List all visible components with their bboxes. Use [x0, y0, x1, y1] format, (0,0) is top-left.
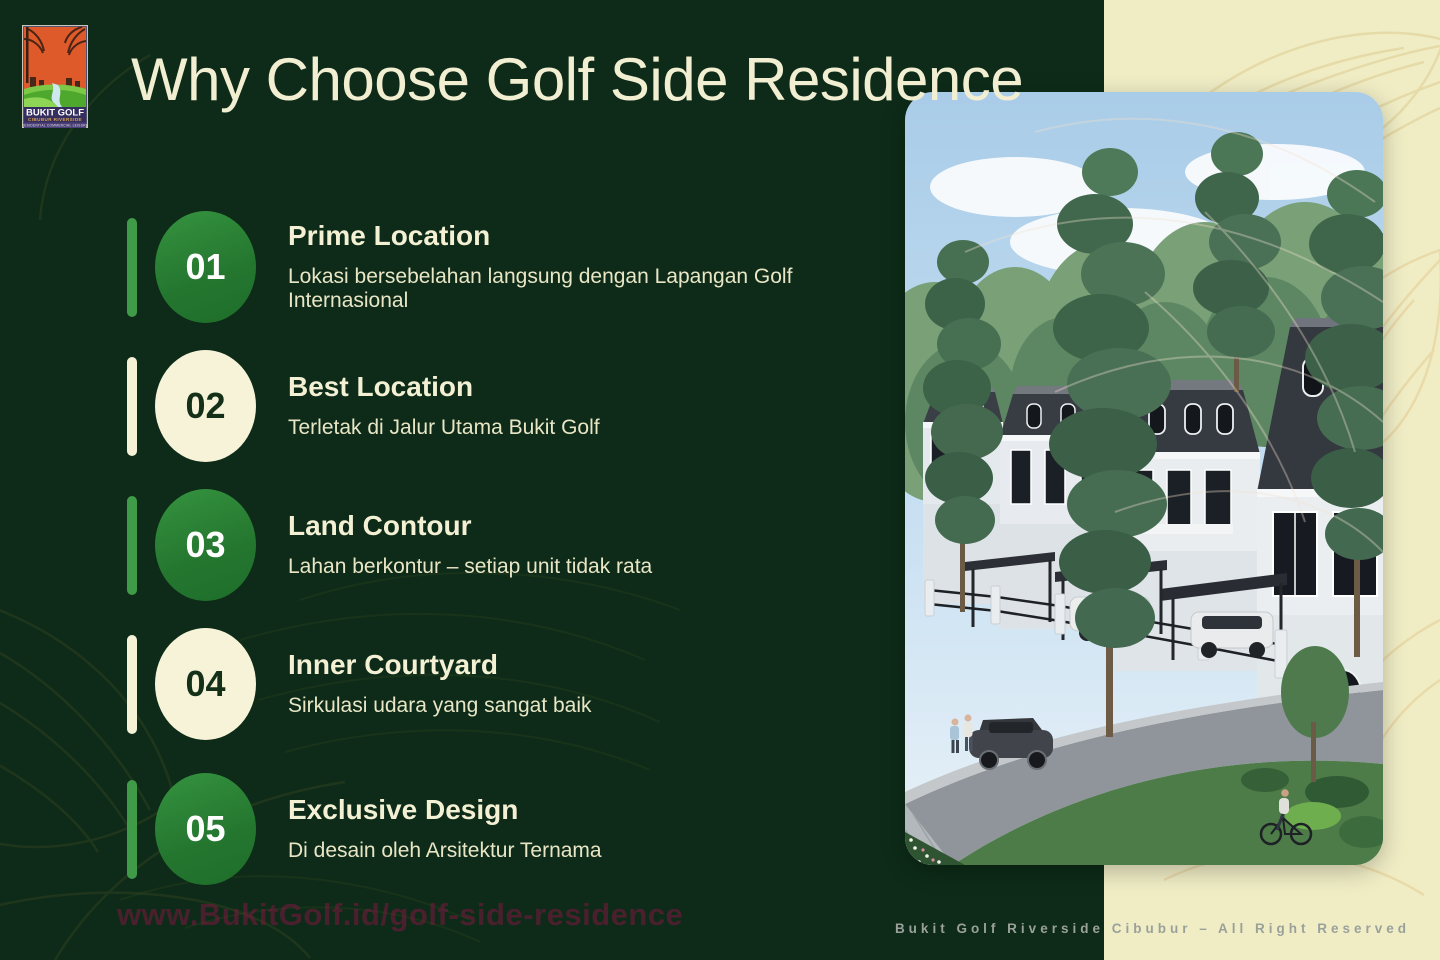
feature-number-badge: 01 [155, 211, 256, 323]
feature-number: 04 [185, 663, 225, 705]
feature-title: Exclusive Design [288, 795, 602, 826]
logo-tagline: RESIDENTIAL COMMERCIAL LEISURE [22, 123, 88, 127]
feature-accent-bar [127, 218, 137, 317]
feature-accent-bar [127, 780, 137, 879]
feature-title: Inner Courtyard [288, 650, 592, 681]
feature-title: Best Location [288, 372, 600, 403]
watermark-url: www.BukitGolf.id/golf-side-residence [117, 897, 683, 933]
feature-number: 05 [185, 808, 225, 850]
slide: BUKIT GOLF CIBUBUR RIVERSIDE RESIDENTIAL… [0, 0, 1440, 960]
feature-list: 01 Prime Location Lokasi bersebelahan la… [127, 0, 917, 960]
feature-description: Sirkulasi udara yang sangat baik [288, 694, 592, 718]
feature-accent-bar [127, 496, 137, 595]
feature-description: Di desain oleh Arsitektur Ternama [288, 839, 602, 863]
feature-item: 02 Best Location Terletak di Jalur Utama… [127, 349, 917, 463]
feature-description: Lahan berkontur – setiap unit tidak rata [288, 555, 652, 579]
feature-accent-bar [127, 357, 137, 456]
feature-item: 05 Exclusive Design Di desain oleh Arsit… [127, 772, 917, 886]
bukit-golf-logo: BUKIT GOLF CIBUBUR RIVERSIDE RESIDENTIAL… [22, 25, 88, 128]
feature-description: Terletak di Jalur Utama Bukit Golf [288, 416, 600, 440]
feature-number-badge: 03 [155, 489, 256, 601]
feature-number-badge: 04 [155, 628, 256, 740]
feature-number-badge: 02 [155, 350, 256, 462]
feature-item: 04 Inner Courtyard Sirkulasi udara yang … [127, 627, 917, 741]
page-title: Why Choose Golf Side Residence [131, 48, 1031, 111]
logo-subname: CIBUBUR RIVERSIDE [28, 117, 82, 122]
feature-item: 03 Land Contour Lahan berkontur – setiap… [127, 488, 917, 602]
feature-number: 02 [185, 385, 225, 427]
feature-number: 03 [185, 524, 225, 566]
feature-accent-bar [127, 635, 137, 734]
residence-photo [905, 92, 1383, 865]
feature-title: Land Contour [288, 511, 652, 542]
copyright-text: Bukit Golf Riverside Cibubur – All Right… [895, 921, 1410, 936]
feature-description: Lokasi bersebelahan langsung dengan Lapa… [288, 265, 917, 313]
feature-item: 01 Prime Location Lokasi bersebelahan la… [127, 210, 917, 324]
feature-number-badge: 05 [155, 773, 256, 885]
feature-number: 01 [185, 246, 225, 288]
feature-title: Prime Location [288, 221, 917, 252]
